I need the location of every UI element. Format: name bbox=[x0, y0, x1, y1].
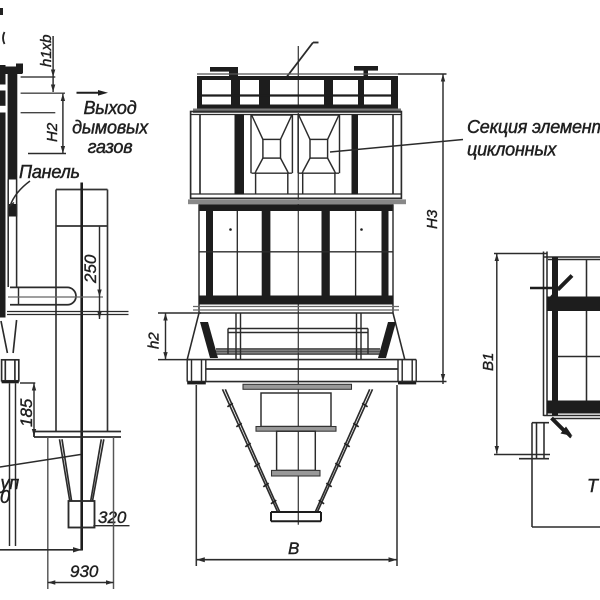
svg-text:Секция элементов: Секция элементов bbox=[467, 117, 600, 137]
svg-text:дымовых: дымовых bbox=[72, 118, 149, 138]
svg-text:250: 250 bbox=[81, 254, 100, 284]
svg-text:Н3: Н3 bbox=[424, 209, 441, 229]
svg-text:Выход: Выход bbox=[83, 98, 136, 118]
svg-text:циклонных: циклонных bbox=[467, 140, 557, 160]
svg-text:0: 0 bbox=[0, 487, 10, 507]
svg-text:930: 930 bbox=[70, 562, 99, 581]
svg-text:В1: В1 bbox=[480, 353, 497, 371]
svg-text:В: В bbox=[288, 539, 299, 558]
svg-text:185: 185 bbox=[17, 398, 36, 427]
svg-text:Н2: Н2 bbox=[44, 122, 61, 142]
svg-text:h1xb: h1xb bbox=[38, 34, 55, 67]
svg-text:320: 320 bbox=[98, 508, 127, 527]
svg-text:Панель: Панель bbox=[19, 162, 80, 182]
svg-text:газов: газов bbox=[88, 137, 133, 157]
svg-text:h2: h2 bbox=[146, 332, 163, 349]
